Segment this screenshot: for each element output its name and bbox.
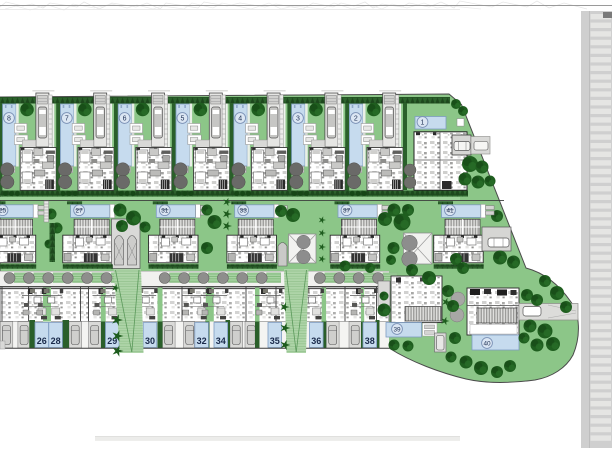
svg-text:25: 25 [0, 208, 6, 215]
svg-text:3: 3 [296, 115, 300, 122]
svg-text:2: 2 [354, 115, 358, 122]
svg-text:34: 34 [216, 336, 226, 346]
svg-text:39: 39 [393, 326, 401, 333]
svg-text:33: 33 [240, 208, 248, 215]
svg-text:30: 30 [145, 336, 155, 346]
svg-text:26: 26 [37, 336, 47, 346]
svg-text:35: 35 [270, 336, 280, 346]
svg-text:7: 7 [65, 115, 69, 122]
svg-text:37: 37 [343, 208, 351, 215]
svg-text:41: 41 [446, 208, 454, 215]
svg-text:32: 32 [197, 336, 207, 346]
svg-text:4: 4 [238, 115, 242, 122]
svg-text:38: 38 [365, 336, 375, 346]
svg-text:5: 5 [180, 115, 184, 122]
svg-text:31: 31 [161, 208, 169, 215]
svg-text:1: 1 [421, 119, 425, 126]
svg-text:6: 6 [123, 115, 127, 122]
svg-text:36: 36 [311, 336, 321, 346]
svg-text:27: 27 [76, 208, 84, 215]
svg-text:8: 8 [7, 115, 11, 122]
svg-text:40: 40 [483, 340, 491, 347]
svg-text:28: 28 [51, 336, 61, 346]
